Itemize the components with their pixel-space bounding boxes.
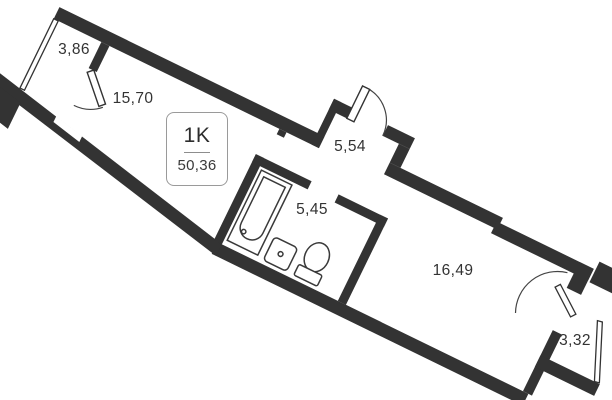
- wall-bathroom: [338, 215, 388, 305]
- walls: [0, 0, 612, 400]
- wall: [212, 242, 529, 400]
- apartment-info-box: 1K 50,36: [166, 112, 228, 186]
- floor-plan: 3,86 15,70 5,54 5,45 16,49 3,32 1K 50,36: [0, 0, 612, 400]
- area-label-balcony-right: 3,32: [559, 332, 591, 350]
- wall: [384, 163, 503, 230]
- area-label-living-room: 15,70: [113, 90, 154, 108]
- floor-plan-drawing: [0, 0, 612, 400]
- wall: [535, 355, 600, 396]
- area-label-bathroom: 5,45: [296, 201, 328, 219]
- total-area-label: 50,36: [177, 157, 216, 174]
- sink: [263, 237, 298, 272]
- window-glazing-left-balcony: [20, 19, 58, 90]
- apartment-type-label: 1K: [184, 124, 211, 148]
- area-label-hallway: 5,54: [334, 138, 366, 156]
- left-balcony-door: [72, 68, 117, 118]
- door-leaf: [87, 70, 105, 106]
- area-label-main-room: 16,49: [433, 262, 474, 280]
- bathtub-drain: [241, 229, 247, 235]
- toilet: [294, 238, 335, 286]
- wall-balcony-partition: [89, 42, 110, 72]
- divider: [184, 152, 210, 153]
- door-leaf: [347, 86, 370, 122]
- wall-neighbor: [589, 262, 612, 294]
- area-label-balcony-left: 3,86: [58, 41, 90, 59]
